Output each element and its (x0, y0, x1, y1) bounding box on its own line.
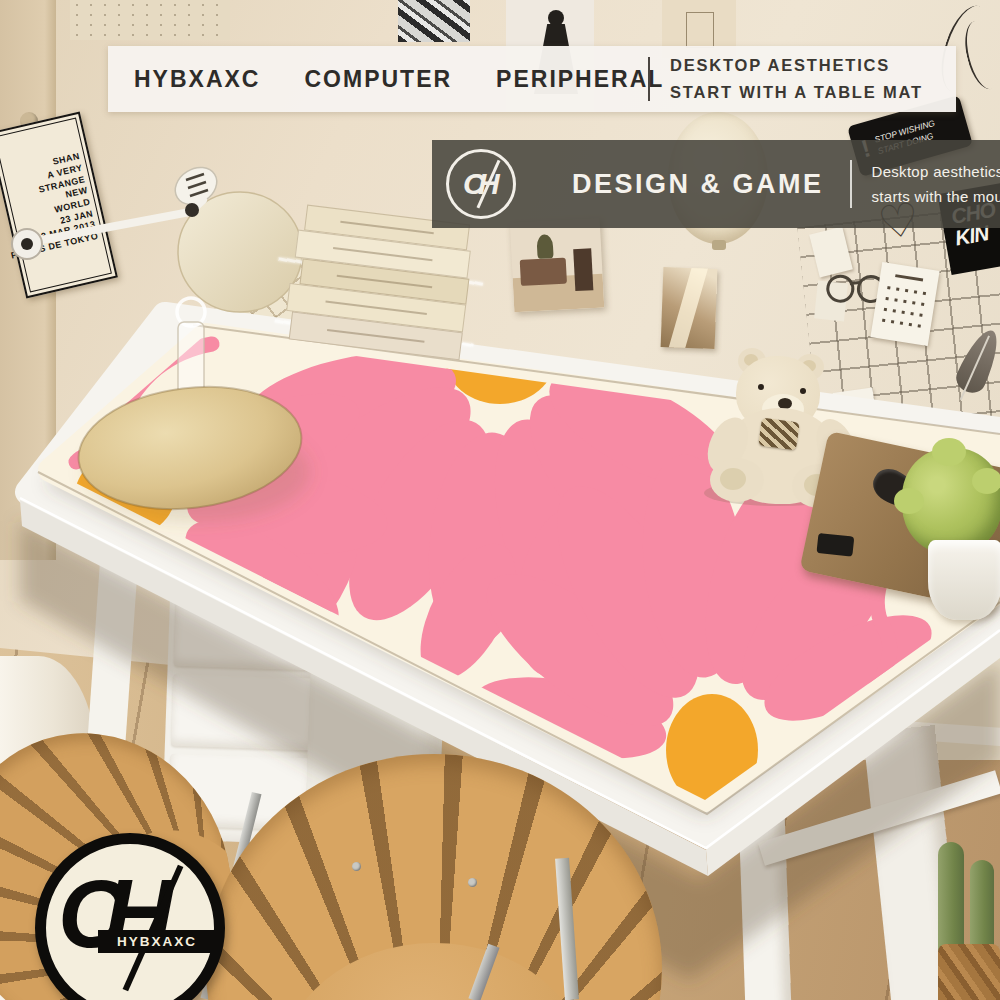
promo-tagline-line: starts with the mouse pad (872, 186, 1000, 207)
product-photo-scene: SHAN A VERY STRANGE NEW WORLD 23 JAN –13… (0, 0, 1000, 1000)
tagline-line: DESKTOP AESTHETICS (670, 54, 923, 78)
ch-logo-ring: CH (446, 149, 516, 219)
brand-word: PERIPHERAL (496, 66, 664, 93)
promo-tagline-line: Desktop aesthetics (872, 161, 1000, 182)
wicker-basket (938, 944, 1000, 1000)
promo-tagline: Desktop aesthetics starts with the mouse… (872, 161, 1000, 207)
tagline-line: START WITH A TABLE MAT (670, 81, 923, 105)
brand-name-band: HYBXAXC (98, 930, 216, 953)
promo-banner: CH DESIGN & GAME Desktop aesthetics star… (432, 140, 1000, 228)
lamp-arm (30, 200, 203, 242)
brand-words: HYBXAXC COMPUTER PERIPHERAL (134, 66, 664, 93)
brand-word: HYBXAXC (134, 66, 260, 93)
desk-lamp (12, 160, 302, 312)
promo-title: DESIGN & GAME (572, 169, 824, 200)
promo-divider (850, 160, 852, 208)
lamp-elbow-joint (185, 203, 199, 217)
phone (816, 533, 854, 557)
brand-word: COMPUTER (304, 66, 452, 93)
plant-pot (928, 540, 1000, 620)
brand-name: HYBXAXC (117, 934, 197, 949)
banner-tagline: DESKTOP AESTHETICS START WITH A TABLE MA… (670, 54, 923, 105)
teddy-bow-tie (758, 417, 800, 450)
banner-divider (648, 57, 650, 101)
top-brand-banner: HYBXAXC COMPUTER PERIPHERAL DESKTOP AEST… (108, 46, 956, 112)
potted-plant-foliage (902, 448, 1000, 554)
